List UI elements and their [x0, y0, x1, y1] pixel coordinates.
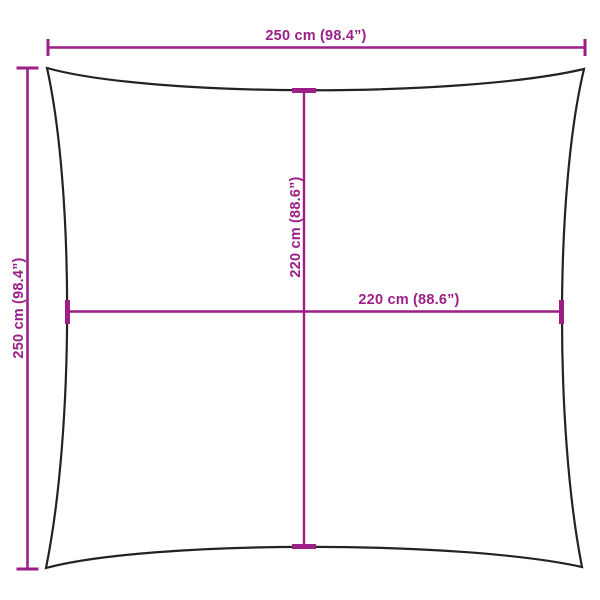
- product-dimension-diagram: 250 cm (98.4”) 250 cm (98.4”) 220 cm (88…: [0, 0, 600, 600]
- left-dimension-label: 250 cm (98.4”): [11, 257, 27, 358]
- inner-horizontal-dimension-label: 220 cm (88.6”): [358, 292, 459, 308]
- top-dimension-label: 250 cm (98.4”): [265, 28, 366, 44]
- diagram-canvas: 250 cm (98.4”) 250 cm (98.4”) 220 cm (88…: [0, 0, 600, 600]
- sail-outline: [46, 68, 584, 568]
- inner-vertical-dimension-label: 220 cm (88.6”): [288, 176, 304, 277]
